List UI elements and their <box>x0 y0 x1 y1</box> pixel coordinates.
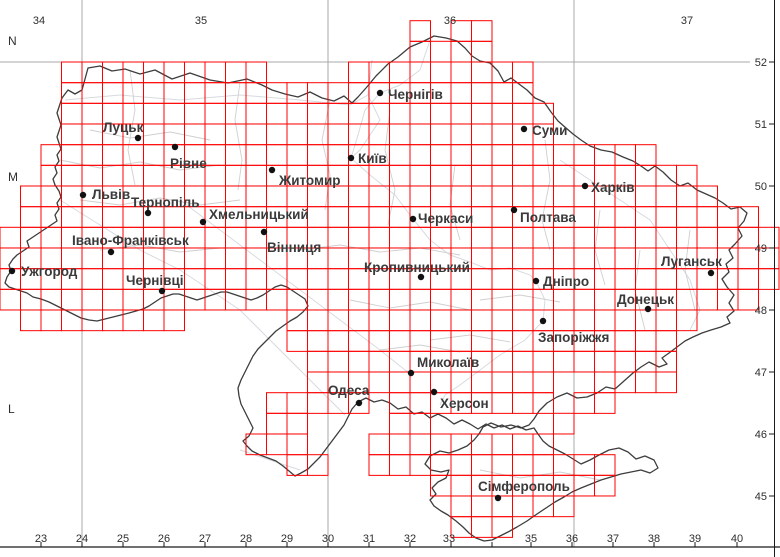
map-sheet-cell <box>472 434 493 455</box>
map-sheet-cell <box>205 227 226 248</box>
city-label: Хмельницький <box>209 207 309 222</box>
map-sheet-cell <box>595 145 616 166</box>
map-sheet-cell <box>328 269 349 290</box>
longitude-label: 35 <box>525 533 537 545</box>
map-sheet-cell <box>615 227 636 248</box>
map-sheet-cell <box>390 103 411 124</box>
map-sheet-cell <box>656 269 677 290</box>
map-sheet-cell <box>328 103 349 124</box>
map-sheet-cell <box>41 165 62 186</box>
map-sheet-cell <box>328 207 349 228</box>
map-sheet-cell <box>82 103 103 124</box>
map-sheet-cell <box>595 351 616 372</box>
map-sheet-cell <box>492 145 513 166</box>
city-label: Запоріжжя <box>538 330 609 345</box>
longitude-label: 26 <box>158 533 170 545</box>
map-sheet-cell <box>513 434 534 455</box>
city-dot <box>261 229 267 235</box>
map-sheet-cell <box>287 186 308 207</box>
map-sheet-cell <box>308 145 329 166</box>
map-sheet-cell <box>103 165 124 186</box>
map-sheet-cell <box>492 124 513 145</box>
map-sheet-cell <box>636 310 657 331</box>
latitude-label: 47 <box>755 367 767 379</box>
map-sheet-cell <box>492 455 513 476</box>
longitude-label: 36 <box>566 533 578 545</box>
map-sheet-cell <box>390 145 411 166</box>
map-sheet-cell <box>677 269 698 290</box>
map-sheet-cell <box>472 41 493 62</box>
map-sheet-cell <box>226 227 247 248</box>
latitude-label: 45 <box>755 491 767 503</box>
map-sheet-cell <box>205 83 226 104</box>
map-sheet-cell <box>615 331 636 352</box>
map-sheet-cell <box>308 372 329 393</box>
map-sheet-cell <box>390 393 411 414</box>
map-sheet-cell <box>369 207 390 228</box>
map-sheet-cell <box>390 124 411 145</box>
map-sheet-cell <box>513 289 534 310</box>
map-sheet-cell <box>0 289 21 310</box>
map-sheet-cell <box>82 124 103 145</box>
map-sheet-cell <box>267 124 288 145</box>
map-sheet-cell <box>636 269 657 290</box>
map-sheet-cell <box>697 186 718 207</box>
map-sheet-cell <box>574 455 595 476</box>
map-sheet-cell <box>533 434 554 455</box>
map-sheet-cell <box>513 269 534 290</box>
map-sheet-cell <box>656 207 677 228</box>
map-sheet-cell <box>226 145 247 166</box>
map-sheet-cell <box>431 145 452 166</box>
map-sheet-cell <box>410 310 431 331</box>
map-sheet-cell <box>349 207 370 228</box>
latitude-label: 51 <box>755 119 767 131</box>
map-sheet-cell <box>472 310 493 331</box>
map-sheet-cell <box>492 186 513 207</box>
hydro-layer <box>60 40 700 470</box>
map-sheet-cell <box>0 248 21 269</box>
map-sheet-cell <box>328 331 349 352</box>
map-sheet-cell <box>369 372 390 393</box>
map-sheet-cell <box>615 207 636 228</box>
map-sheet-cell <box>472 227 493 248</box>
map-sheet-cell <box>410 145 431 166</box>
map-sheet-cell <box>472 145 493 166</box>
oblast-boundary-line <box>322 100 330 210</box>
map-sheet-cell <box>472 21 493 42</box>
map-sheet-cell <box>431 165 452 186</box>
city-dot <box>80 192 86 198</box>
map-sheet-cell <box>267 393 288 414</box>
map-sheet-cell <box>451 62 472 83</box>
map-sheet-cell <box>513 248 534 269</box>
map-sheet-cell <box>103 62 124 83</box>
oblast-boundary-line <box>685 230 695 310</box>
map-sheet-cell <box>287 289 308 310</box>
map-sheet-cell <box>287 413 308 434</box>
river-line <box>180 200 411 373</box>
river-line <box>240 450 300 470</box>
map-sheet-cell <box>390 165 411 186</box>
map-sheet-cell <box>513 496 534 517</box>
oblast-boundary-line <box>430 335 510 342</box>
latitude-label: 48 <box>755 305 767 317</box>
map-sheet-cell <box>287 393 308 414</box>
map-sheet-cell <box>554 289 575 310</box>
map-sheet-cell <box>328 351 349 372</box>
map-sheet-cell <box>82 269 103 290</box>
map-sheet-cell <box>472 372 493 393</box>
city-label: Луцьк <box>103 120 144 135</box>
map-sheet-cell <box>595 393 616 414</box>
map-sheet-cell <box>328 289 349 310</box>
river-line <box>351 60 545 405</box>
city-label: Херсон <box>440 396 489 411</box>
map-sheet-cell <box>410 227 431 248</box>
map-sheet-cell <box>308 289 329 310</box>
map-sheet-cell <box>246 186 267 207</box>
map-sheet-cell <box>472 331 493 352</box>
map-sheet-cell <box>472 83 493 104</box>
map-sheet-cell <box>472 269 493 290</box>
longitude-label: 30 <box>322 533 334 545</box>
map-sheet-cell <box>492 351 513 372</box>
latitude-label: 49 <box>755 243 767 255</box>
map-sheet-cell <box>21 227 42 248</box>
map-sheet-cell <box>390 310 411 331</box>
map-sheet-cell <box>574 351 595 372</box>
map-sheet-cell <box>431 41 452 62</box>
map-sheet-cell <box>595 289 616 310</box>
map-sheet-cell <box>574 145 595 166</box>
row-letter-label: L <box>8 402 15 416</box>
map-sheet-cell <box>533 248 554 269</box>
oblast-boundary-line <box>235 82 242 190</box>
map-sheet-cell <box>205 269 226 290</box>
map-sheet-cell <box>533 165 554 186</box>
city-label: Чернігів <box>388 87 443 102</box>
map-sheet-cell <box>246 434 267 455</box>
map-sheet-cell <box>492 310 513 331</box>
map-sheet-cell <box>410 21 431 42</box>
map-sheet-cell <box>144 103 165 124</box>
map-sheet-cell <box>656 186 677 207</box>
map-sheet-cell <box>267 434 288 455</box>
map-sheet-cell <box>390 207 411 228</box>
longitude-label: 31 <box>363 533 375 545</box>
map-sheet-cell <box>21 310 42 331</box>
map-sheet-cell <box>595 310 616 331</box>
map-sheet-cell <box>185 103 206 124</box>
map-sheet-cell <box>62 62 83 83</box>
map-sheet-cell <box>595 455 616 476</box>
map-sheet-cell <box>246 124 267 145</box>
map-sheet-cell <box>226 269 247 290</box>
city-dot <box>348 155 354 161</box>
map-sheet-cell <box>349 227 370 248</box>
map-sheet-cell <box>369 331 390 352</box>
map-sheet-cell <box>472 103 493 124</box>
map-sheet-cell <box>718 289 739 310</box>
row-letter-label: M <box>8 170 18 184</box>
map-sheet-cell <box>349 289 370 310</box>
city-label: Тернопіль <box>131 195 200 210</box>
map-sheet-cell <box>267 289 288 310</box>
map-sheet-cell <box>0 227 21 248</box>
map-sheet-cell <box>62 289 83 310</box>
map-sheet-cell <box>513 351 534 372</box>
map-sheet-cell <box>472 165 493 186</box>
map-sheet-cell <box>472 186 493 207</box>
map-sheet-cell <box>677 310 698 331</box>
map-sheet-cell <box>62 103 83 124</box>
city-label: Житомир <box>278 173 341 188</box>
map-sheet-cell <box>410 331 431 352</box>
oblast-boundary-line <box>542 140 550 250</box>
map-sheet-cell <box>677 227 698 248</box>
map-sheet-cell <box>287 434 308 455</box>
map-sheet-cell <box>574 310 595 331</box>
map-sheet-cell <box>574 207 595 228</box>
map-sheet-cell <box>677 186 698 207</box>
latitude-label: 52 <box>755 57 767 69</box>
map-sheet-cell <box>595 269 616 290</box>
map-sheet-cell <box>410 103 431 124</box>
longitude-label: 39 <box>689 533 701 545</box>
map-sheet-cell <box>82 83 103 104</box>
map-sheet-cell <box>308 310 329 331</box>
zone-number-label: 36 <box>444 15 456 27</box>
map-sheet-cell <box>492 103 513 124</box>
map-sheet-cell <box>431 62 452 83</box>
ukraine-map-svg: 34353637NML52515049484746452324252627282… <box>0 0 780 557</box>
map-sheet-cell <box>328 186 349 207</box>
map-sheet-cell <box>164 310 185 331</box>
map-sheet-cell <box>226 186 247 207</box>
map-sheet-cell <box>185 83 206 104</box>
map-sheet-cell <box>533 227 554 248</box>
map-sheet-cell <box>554 165 575 186</box>
map-sheet-cell <box>349 62 370 83</box>
map-sheet-cell <box>513 227 534 248</box>
map-sheet-cell <box>554 227 575 248</box>
map-sheet-cell <box>533 351 554 372</box>
map-sheet-cell <box>513 145 534 166</box>
map-sheet-cell <box>554 496 575 517</box>
map-sheet-cell <box>492 248 513 269</box>
longitude-label: 32 <box>404 533 416 545</box>
longitude-label: 40 <box>731 533 743 545</box>
map-sheet-cell <box>636 227 657 248</box>
row-letter-label: N <box>8 34 17 48</box>
city-label: Миколаїв <box>417 355 479 370</box>
map-sheet-cell <box>308 186 329 207</box>
map-sheet-cell <box>246 145 267 166</box>
map-sheet-cell <box>533 289 554 310</box>
city-dot <box>108 249 114 255</box>
city-label: Івано-Франківськ <box>72 233 189 248</box>
map-sheet-cell <box>492 227 513 248</box>
map-sheet-cell <box>164 103 185 124</box>
map-sheet-cell <box>185 269 206 290</box>
map-sheet-cell <box>492 83 513 104</box>
map-sheet-cell <box>369 186 390 207</box>
map-sheet-cell <box>697 269 718 290</box>
map-sheet-cell <box>492 207 513 228</box>
map-sheet-cell <box>533 103 554 124</box>
city-label: Сімферополь <box>478 479 570 494</box>
map-sheet-cell <box>533 186 554 207</box>
city-label: Полтава <box>520 210 576 225</box>
map-sheet-cell <box>431 227 452 248</box>
map-sheet-cell <box>636 372 657 393</box>
city-label: Рівне <box>170 156 207 171</box>
city-dot <box>408 370 414 376</box>
map-sheet-cell <box>451 103 472 124</box>
map-sheet-cell <box>267 413 288 434</box>
city-dot <box>200 219 206 225</box>
map-sheet-cell <box>431 289 452 310</box>
map-sheet-cell <box>697 289 718 310</box>
longitude-label: 29 <box>281 533 293 545</box>
map-sheet-cell <box>697 207 718 228</box>
map-sheet-cell <box>492 434 513 455</box>
city-dot <box>159 288 165 294</box>
map-sheet-cell <box>554 351 575 372</box>
city-label: Київ <box>358 151 387 166</box>
map-sheet-cell <box>656 372 677 393</box>
map-sheet-cell <box>205 165 226 186</box>
map-sheet-cell <box>410 393 431 414</box>
city-label: Ужгород <box>21 264 78 279</box>
city-dot <box>582 183 588 189</box>
map-sheet-cell <box>62 83 83 104</box>
city-label: Черкаси <box>418 211 473 226</box>
map-sheet-cell <box>697 227 718 248</box>
map-sheet-cell <box>451 310 472 331</box>
city-dot <box>377 90 383 96</box>
map-sheet-cell <box>226 124 247 145</box>
longitude-label: 24 <box>76 533 88 545</box>
map-sheet-cell <box>410 62 431 83</box>
longitude-label: 28 <box>240 533 252 545</box>
city-dot <box>511 207 517 213</box>
map-sheet-cell <box>431 103 452 124</box>
map-sheet-cell <box>390 413 411 434</box>
map-sheet-cell <box>390 351 411 372</box>
city-label: Харків <box>591 180 635 195</box>
map-sheet-cell <box>41 310 62 331</box>
map-sheet-cell <box>554 310 575 331</box>
map-sheet-cell <box>615 248 636 269</box>
map-sheet-cell <box>554 186 575 207</box>
map-sheet-cell <box>144 248 165 269</box>
latitude-label: 46 <box>755 429 767 441</box>
map-sheet-cell <box>431 186 452 207</box>
map-sheet-cell <box>185 124 206 145</box>
zone-number-label: 35 <box>195 15 207 27</box>
longitude-label: 37 <box>607 533 619 545</box>
city-dot <box>356 400 362 406</box>
city-label: Вінниця <box>267 240 321 255</box>
map-sheet-cell <box>308 269 329 290</box>
map-sheet-cell <box>574 248 595 269</box>
map-sheet-cell <box>390 372 411 393</box>
city-dot <box>521 126 527 132</box>
map-sheet-cell <box>513 103 534 124</box>
map-sheet-cell <box>492 269 513 290</box>
longitude-label: 27 <box>199 533 211 545</box>
map-sheet-cell <box>246 103 267 124</box>
map-sheet-cell <box>308 351 329 372</box>
map-sheet-cell <box>595 372 616 393</box>
map-sheet-cell <box>226 83 247 104</box>
map-sheet-cell <box>144 83 165 104</box>
map-sheet-cell <box>533 496 554 517</box>
map-sheet-cell <box>308 393 329 414</box>
map-sheet-cell <box>369 455 390 476</box>
map-sheet-cell <box>328 248 349 269</box>
map-sheet-cell <box>267 186 288 207</box>
map-sheet-cell <box>328 124 349 145</box>
map-sheet-cell <box>62 165 83 186</box>
map-sheet-cell <box>533 372 554 393</box>
map-sheet-cell <box>451 455 472 476</box>
map-sheet-cell <box>615 351 636 372</box>
zone-number-label: 34 <box>33 15 45 27</box>
map-sheet-cell <box>308 83 329 104</box>
map-sheet-cell <box>103 310 124 331</box>
map-sheet-cell <box>103 145 124 166</box>
map-sheet-cell <box>615 310 636 331</box>
map-sheet-cell <box>513 372 534 393</box>
map-sheet-cell <box>246 248 267 269</box>
map-sheet-cell <box>369 227 390 248</box>
oblast-boundary-line <box>635 250 645 330</box>
map-sheet-cell <box>451 496 472 517</box>
map-sheet-cell <box>574 227 595 248</box>
map-sheet-cell <box>287 103 308 124</box>
map-sheet-cell <box>492 165 513 186</box>
map-sheet-cell <box>636 331 657 352</box>
map-sheet-cell <box>226 248 247 269</box>
map-sheet-cell <box>349 165 370 186</box>
city-dot <box>145 210 151 216</box>
map-sheet-cell <box>513 393 534 414</box>
oblast-boundary-line <box>300 245 460 255</box>
map-sheet-cell <box>205 248 226 269</box>
map-sheet-cell <box>144 165 165 186</box>
map-sheet-cell <box>513 186 534 207</box>
city-label: Луганськ <box>661 254 722 269</box>
city-dot <box>495 495 501 501</box>
map-sheet-cell <box>636 165 657 186</box>
map-sheet-cell <box>451 475 472 496</box>
map-sheet-cell <box>205 103 226 124</box>
map-sheet-cell <box>410 434 431 455</box>
map-sheet-cell <box>308 331 329 352</box>
map-sheet-cell <box>369 310 390 331</box>
map-sheet-cell <box>533 393 554 414</box>
map-sheet-cell <box>21 207 42 228</box>
map-sheet-cell <box>533 455 554 476</box>
map-sheet-cell <box>82 165 103 186</box>
map-sheet-cell <box>472 248 493 269</box>
map-sheet-cell <box>738 269 759 290</box>
map-sheet-cell <box>246 269 267 290</box>
map-sheet-cell <box>472 207 493 228</box>
